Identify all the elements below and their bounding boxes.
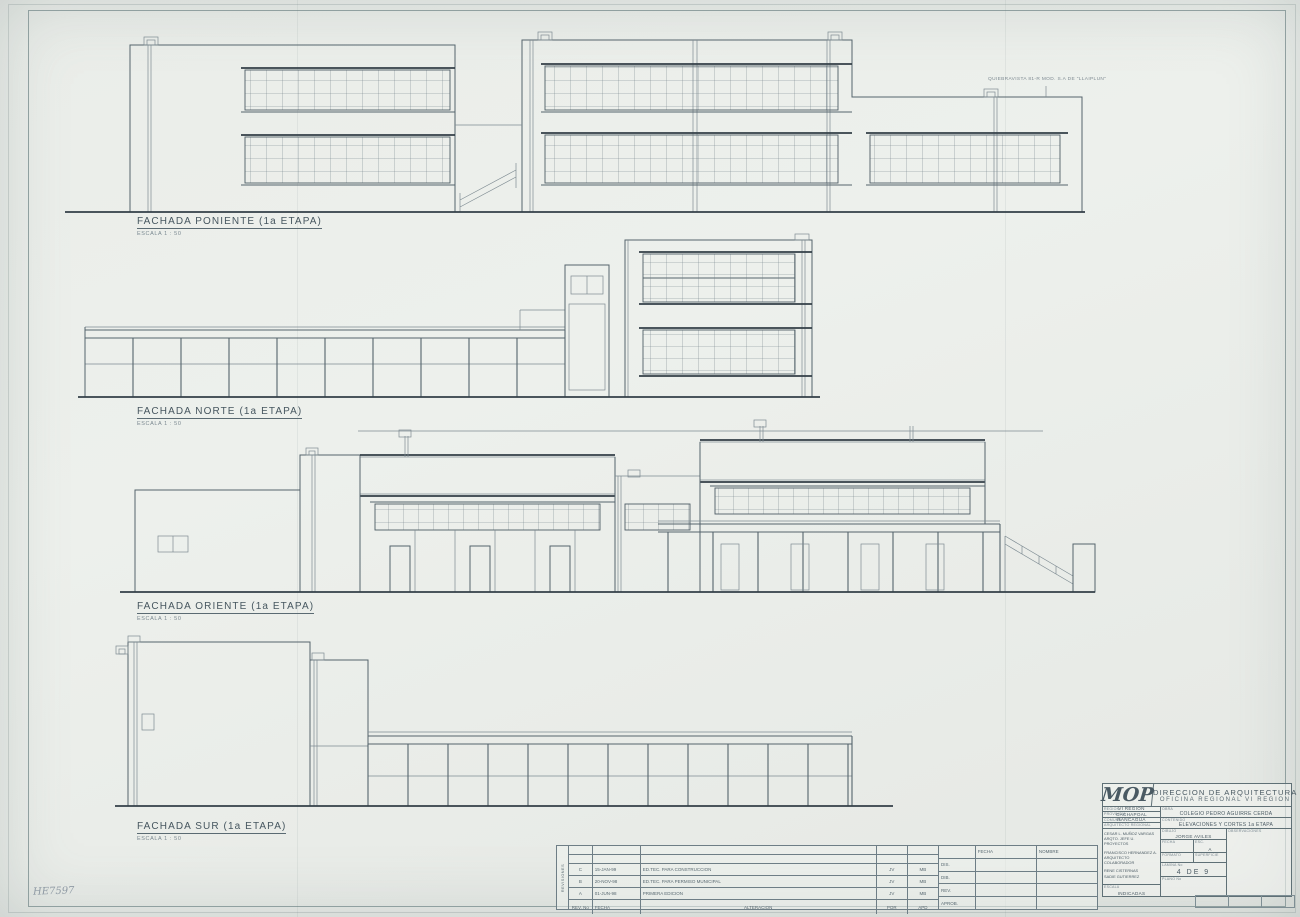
sheet-fields: DIBUJO JORGE AVILES FECHA ESC. A FORMATO: [1161, 829, 1227, 896]
colonnade: [368, 732, 852, 806]
project-fields: OBRA COLEGIO PEDRO AGUIRRE CERDA CONTENI…: [1161, 807, 1291, 828]
facade-sur-label: FACHADA SUR (1a ETAPA) ESCALA 1 : 50: [137, 821, 286, 842]
facade-title: FACHADA ORIENTE (1a ETAPA): [137, 601, 314, 614]
superficie-field: SUPERFICIE: [1194, 853, 1226, 862]
stamp-cell: [1196, 896, 1229, 907]
observaciones-field: OBSERVACIONES: [1227, 829, 1291, 896]
facade-poniente-label: FACHADA PONIENTE (1a ETAPA) ESCALA 1 : 5…: [137, 216, 322, 237]
title-block: MOP DIRECCION DE ARQUITECTURA OFICINA RE…: [1102, 783, 1292, 897]
stair-tower: [565, 265, 609, 397]
facade-oriente-label: FACHADA ORIENTE (1a ETAPA) ESCALA 1 : 50: [137, 601, 314, 622]
obra-field: OBRA COLEGIO PEDRO AGUIRRE CERDA: [1161, 807, 1291, 818]
drawing-sheet: FACHADA PONIENTE (1a ETAPA) ESCALA 1 : 5…: [0, 0, 1300, 917]
main-block: [625, 234, 812, 397]
block-left: [116, 636, 310, 806]
revision-header-row: REV. No FECHA ALTERACION POR APD: [569, 899, 938, 914]
revision-row-empty: [569, 846, 938, 854]
org-line1: DIRECCION DE ARQUITECTURA: [1153, 788, 1297, 797]
facade-sur-drawing: [58, 628, 978, 813]
stamp-cell: [1262, 896, 1294, 907]
signature-block: FECHA NOMBRE DIS. DIB. REV. APROB.: [938, 846, 1097, 909]
revision-side-label: REVISIONES: [557, 846, 569, 909]
contenido-field: CONTENIDO ELEVACIONES Y CORTES 1a ETAPA: [1161, 818, 1291, 828]
truss-section-b: [700, 420, 985, 592]
facade-scale: ESCALA 1 : 50: [137, 616, 314, 622]
fecha-field: FECHA: [1161, 840, 1194, 852]
facade-scale: ESCALA 1 : 50: [137, 421, 302, 427]
title-block-header: MOP DIRECCION DE ARQUITECTURA OFICINA RE…: [1103, 784, 1291, 807]
facade-scale: ESCALA 1 : 50: [137, 836, 286, 842]
facade-title: FACHADA NORTE (1a ETAPA): [137, 406, 302, 419]
block-middle: [310, 653, 368, 806]
org-line2: OFICINA REGIONAL VI REGION: [1160, 797, 1291, 803]
window-grids: [245, 66, 1060, 183]
revision-row-empty: [569, 854, 938, 863]
revision-row: C 15-JAN-99 ED.TEC. PARA CONSTRUCCION JV…: [569, 863, 938, 875]
revision-rows: C 15-JAN-99 ED.TEC. PARA CONSTRUCCION JV…: [569, 846, 938, 909]
location-fields: REGION VI REGION PROVINCIA CACHAPOAL COM…: [1103, 807, 1161, 828]
signature-row: APROB.: [939, 896, 1097, 909]
stamp-cell: [1229, 896, 1262, 907]
revision-row: B 20-NOV-98 ED.TEC. PARA PERMISO MUNICIP…: [569, 875, 938, 887]
signature-row: DIS.: [939, 858, 1097, 871]
corner-stamp-cells: [1195, 895, 1295, 908]
escala-field: ESCALA INDICADAS: [1103, 884, 1160, 896]
formato-superficie-row: FORMATO SUPERFICIE: [1161, 853, 1226, 863]
fecha-esc-row: FECHA ESC. A: [1161, 840, 1226, 853]
formato-field: FORMATO: [1161, 853, 1194, 862]
facade-norte-drawing: [58, 226, 1098, 411]
signature-header: FECHA NOMBRE: [939, 846, 1097, 858]
signatory-names: CESAR L. MUÑOZ VARGAS ARQTO. JEFE U. PRO…: [1103, 829, 1160, 884]
facade-poniente-drawing: [58, 28, 1098, 218]
corridor: [85, 310, 565, 397]
signatories: CESAR L. MUÑOZ VARGAS ARQTO. JEFE U. PRO…: [1103, 829, 1161, 896]
connector: [615, 470, 700, 592]
revision-row: A 01-JUN-98 PRIMERA EDICION JV MB: [569, 887, 938, 899]
facade-title: FACHADA PONIENTE (1a ETAPA): [137, 216, 322, 229]
org-names: DIRECCION DE ARQUITECTURA OFICINA REGION…: [1153, 784, 1297, 806]
truss-section-a: [360, 430, 615, 592]
quiebravista-annotation: QUIEBRAVISTA 81-R MOD. S.A DE "LLAIPLUN": [988, 77, 1106, 82]
revision-table: REVISIONES C 15-JAN-99 ED.TEC. PARA CONS…: [556, 845, 1098, 910]
title-block-location: REGION VI REGION PROVINCIA CACHAPOAL COM…: [1103, 807, 1291, 829]
lamina-field: LAMINA No 4 DE 9: [1161, 863, 1226, 877]
dibujo-field: DIBUJO JORGE AVILES: [1161, 829, 1226, 840]
esc-field: ESC. A: [1194, 840, 1226, 852]
signature-row: DIB.: [939, 871, 1097, 884]
exterior-stair: [1005, 536, 1095, 592]
plano-field: PLANO No: [1161, 877, 1226, 896]
facade-title: FACHADA SUR (1a ETAPA): [137, 821, 286, 834]
handwritten-file-mark: HE7597: [33, 885, 75, 897]
signature-row: REV.: [939, 883, 1097, 896]
facade-norte-label: FACHADA NORTE (1a ETAPA) ESCALA 1 : 50: [137, 406, 302, 427]
mop-logo: MOP: [1102, 784, 1154, 806]
arquitecto-regional-field: ARQUITECTO REGIONAL: [1103, 823, 1160, 827]
facade-oriente-drawing: [58, 418, 1098, 603]
title-block-body: CESAR L. MUÑOZ VARGAS ARQTO. JEFE U. PRO…: [1103, 829, 1291, 896]
facade-scale: ESCALA 1 : 50: [137, 231, 322, 237]
block-left: [135, 448, 360, 592]
covered-walkway: [658, 521, 1000, 592]
